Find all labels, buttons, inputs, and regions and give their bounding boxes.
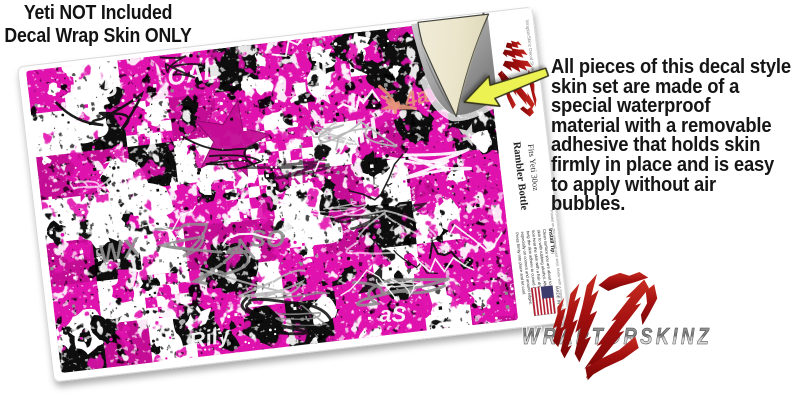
svg-text:aS: aS: [379, 301, 407, 326]
svg-text:SO: SO: [250, 225, 286, 253]
